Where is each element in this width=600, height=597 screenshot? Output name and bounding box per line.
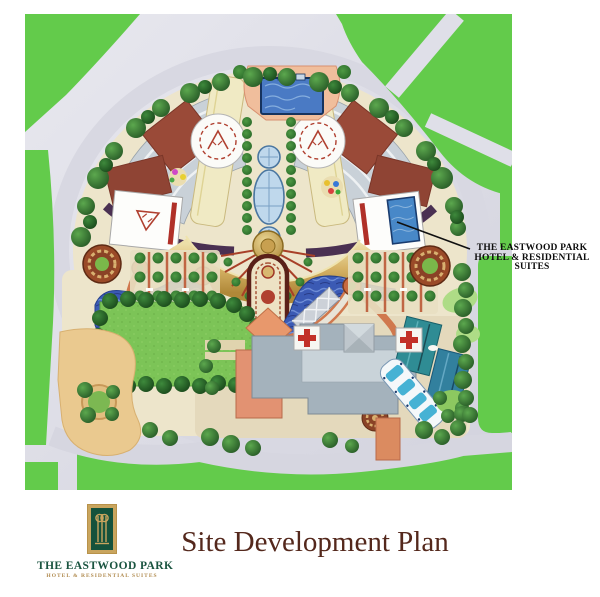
round-tower-east xyxy=(291,114,345,168)
callout-line-3: SUITES xyxy=(468,263,596,273)
logo-emblem xyxy=(87,504,117,554)
callout-label: THE EASTWOOD PARK HOTEL & RESIDENTIAL SU… xyxy=(468,244,596,273)
playground-east xyxy=(321,176,343,198)
paving-medallion-west xyxy=(83,245,121,283)
paving-medallion-east xyxy=(410,246,450,286)
roof-pavilions xyxy=(294,324,438,352)
logo-tagline: HOTEL & RESIDENTIAL SUITES xyxy=(37,573,167,579)
sand-garden xyxy=(58,329,141,456)
playground-west xyxy=(169,168,187,186)
logo-monogram-icon xyxy=(91,508,113,550)
ballroom-west xyxy=(109,190,182,251)
round-tower-west xyxy=(191,114,245,168)
page-title: Site Development Plan xyxy=(140,526,490,559)
logo-name: THE EASTWOOD PARK xyxy=(37,560,167,572)
page: THE EASTWOOD PARK HOTEL & RESIDENTIAL SU… xyxy=(0,0,600,597)
